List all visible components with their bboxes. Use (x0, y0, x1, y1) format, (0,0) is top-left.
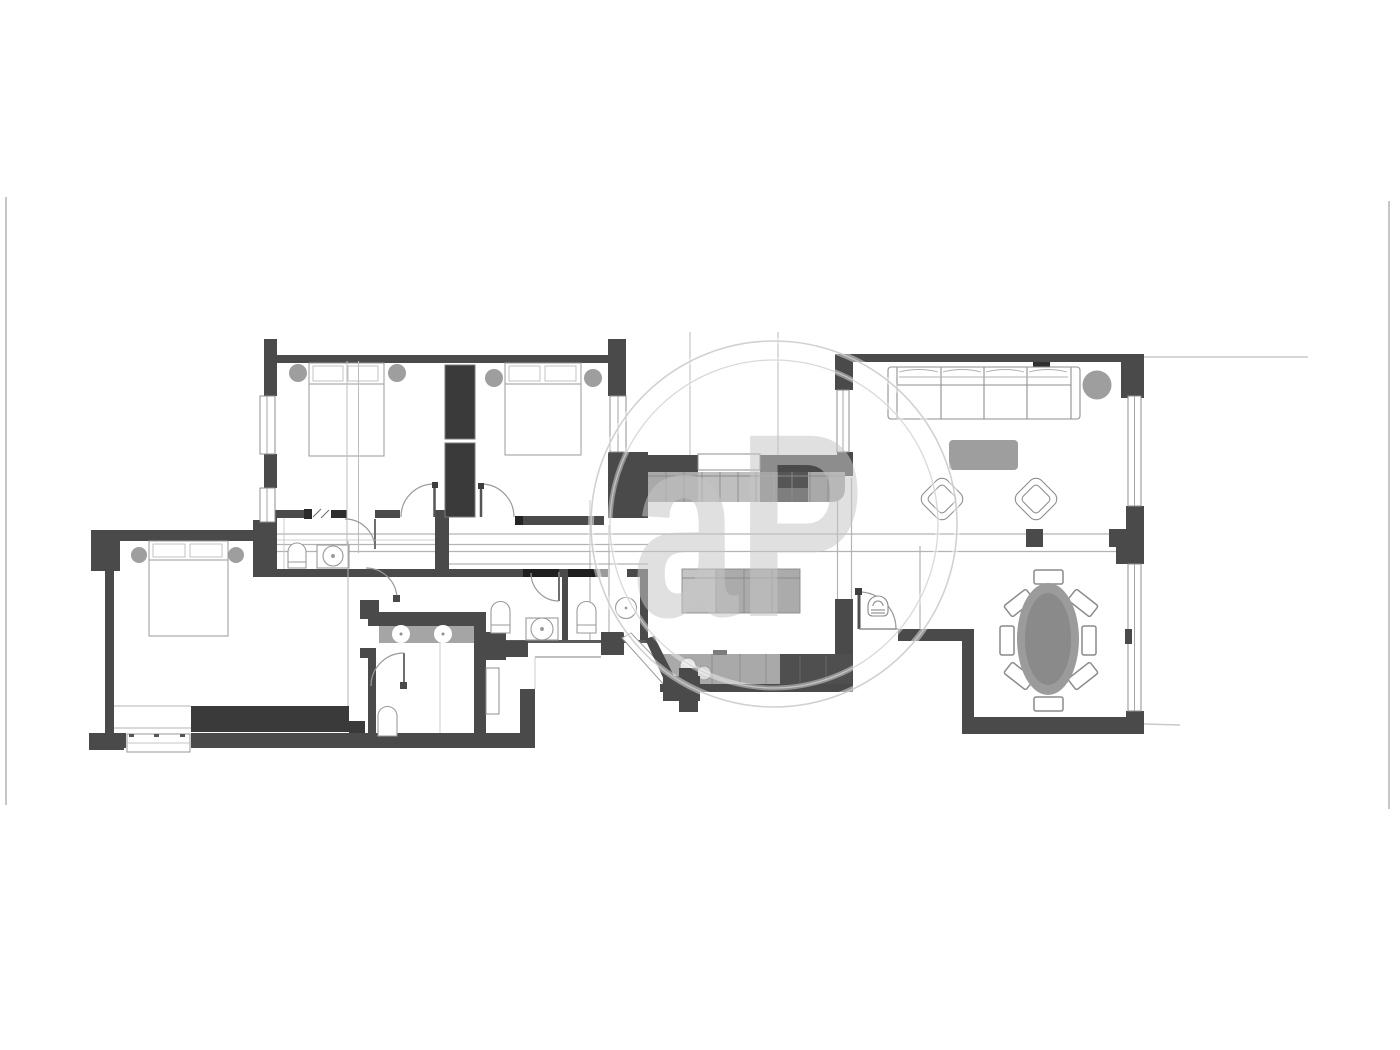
svg-text:aP: aP (632, 379, 864, 672)
